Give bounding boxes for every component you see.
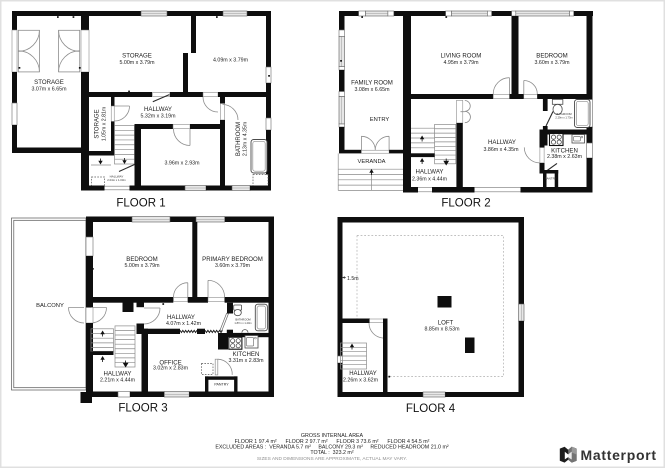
svg-text:PANTRY: PANTRY	[214, 383, 229, 387]
svg-text:PRIMARY BEDROOM: PRIMARY BEDROOM	[202, 256, 263, 263]
svg-text:LIVING ROOM: LIVING ROOM	[441, 53, 482, 60]
svg-text:2.38m x 2.63m: 2.38m x 2.63m	[547, 154, 583, 160]
svg-text:VERANDA: VERANDA	[357, 159, 385, 165]
svg-text:HALLWAY: HALLWAY	[416, 169, 444, 176]
svg-text:PANTRY: PANTRY	[545, 177, 557, 181]
svg-text:HALLWAY: HALLWAY	[167, 314, 195, 321]
svg-text:5.00m x 3.79m: 5.00m x 3.79m	[119, 60, 155, 66]
svg-text:3.60m x 3.79m: 3.60m x 3.79m	[534, 60, 570, 66]
svg-text:BEDROOM: BEDROOM	[536, 53, 568, 60]
svg-text:HALLWAY: HALLWAY	[144, 106, 172, 113]
svg-text:1.05m x 2.81m: 1.05m x 2.81m	[102, 107, 108, 141]
svg-text:HALLWAY: HALLWAY	[488, 139, 516, 146]
svg-text:HALLWAY: HALLWAY	[349, 371, 377, 377]
svg-text:FLOOR 1: FLOOR 1	[116, 198, 165, 210]
svg-text:4.07m x 1.42m: 4.07m x 1.42m	[166, 321, 202, 327]
svg-text:KITCHEN: KITCHEN	[233, 351, 260, 358]
svg-text:3.96m x 2.93m: 3.96m x 2.93m	[164, 161, 200, 167]
svg-text:FLOOR 4: FLOOR 4	[406, 403, 456, 415]
svg-text:3.08m x 6.65m: 3.08m x 6.65m	[354, 87, 390, 93]
svg-text:ENTRY: ENTRY	[370, 117, 390, 123]
svg-text:1.5m: 1.5m	[347, 276, 359, 282]
svg-text:STORAGE: STORAGE	[95, 109, 101, 138]
svg-text:FAMILY ROOM: FAMILY ROOM	[351, 80, 393, 87]
svg-text:BEDROOM: BEDROOM	[126, 256, 158, 263]
svg-text:2.13m x 4.35m: 2.13m x 4.35m	[242, 122, 248, 156]
svg-text:STORAGE: STORAGE	[122, 53, 152, 60]
svg-text:BALCONY: BALCONY	[36, 303, 64, 309]
svg-text:3.07m x 6.65m: 3.07m x 6.65m	[31, 87, 67, 93]
svg-text:BATHROOM: BATHROOM	[236, 122, 242, 156]
svg-text:4.09m x 3.79m: 4.09m x 3.79m	[213, 58, 249, 64]
svg-text:FLOOR 2: FLOOR 2	[441, 198, 490, 210]
svg-text:3.31m x 2.83m: 3.31m x 2.83m	[228, 358, 264, 364]
svg-text:HALLWAY: HALLWAY	[104, 370, 132, 377]
svg-text:TOTAL : 323.2 m²: TOTAL : 323.2 m²	[310, 450, 353, 456]
svg-text:5.00m x 3.79m: 5.00m x 3.79m	[124, 263, 160, 269]
svg-text:Matterport: Matterport	[581, 447, 657, 463]
svg-text:2.36m x 4.44m: 2.36m x 4.44m	[412, 176, 448, 182]
svg-text:2.26m x 3.62m: 2.26m x 3.62m	[343, 377, 379, 383]
svg-text:3.86m x 4.35m: 3.86m x 4.35m	[483, 147, 519, 153]
svg-text:3.02m x 2.83m: 3.02m x 2.83m	[153, 365, 189, 371]
svg-text:2.04m x 1.03m: 2.04m x 1.03m	[107, 178, 126, 182]
svg-text:STORAGE: STORAGE	[34, 79, 64, 86]
svg-text:FLOOR 3: FLOOR 3	[118, 403, 167, 415]
svg-text:2.29m x 1.73m: 2.29m x 1.73m	[555, 115, 572, 119]
svg-text:LOFT: LOFT	[438, 319, 454, 326]
svg-text:1.87m x 1.40m: 1.87m x 1.40m	[234, 321, 251, 325]
svg-text:5.32m x 3.19m: 5.32m x 3.19m	[140, 113, 176, 119]
svg-text:4.95m x 3.79m: 4.95m x 3.79m	[443, 60, 479, 66]
svg-text:8.85m x 8.53m: 8.85m x 8.53m	[424, 327, 460, 333]
svg-text:2.21m x 4.44m: 2.21m x 4.44m	[100, 377, 136, 383]
svg-text:3.60m x 3.79m: 3.60m x 3.79m	[215, 263, 251, 269]
svg-text:SIZES AND DIMENSIONS ARE APPRO: SIZES AND DIMENSIONS ARE APPROXIMATE, AC…	[257, 456, 407, 462]
